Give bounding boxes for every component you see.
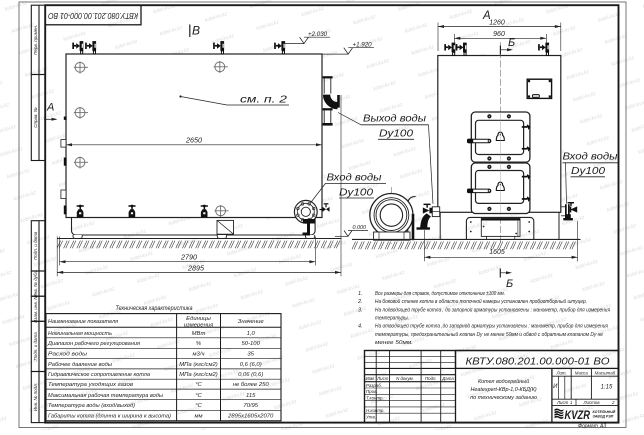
svg-text:ЗАВОД РЭП: ЗАВОД РЭП bbox=[593, 414, 614, 418]
svg-text:Лит.: Лит. bbox=[555, 370, 566, 375]
svg-text:Формат: Формат bbox=[578, 423, 598, 429]
svg-text:КВТУ.080.201.00.000-01 ВО: КВТУ.080.201.00.000-01 ВО bbox=[466, 356, 610, 368]
svg-text:Листов: Листов bbox=[583, 400, 601, 405]
svg-text:35: 35 bbox=[247, 351, 254, 357]
svg-text:На подводящей трубе котла , д: На подводящей трубе котла , до запорной … bbox=[375, 306, 610, 313]
svg-text:70/95: 70/95 bbox=[243, 403, 258, 409]
svg-text:Dy100: Dy100 bbox=[339, 186, 373, 198]
svg-text:Heatexpert-КВр-1,0-КБД(К): Heatexpert-КВр-1,0-КБД(К) bbox=[471, 387, 537, 393]
svg-text:Все размеры для справок, допус: Все размеры для справок, допустимое откл… bbox=[375, 291, 505, 297]
svg-text:Диапазон рабочего регулировани: Диапазон рабочего регулирования bbox=[47, 341, 141, 347]
svg-text:МПа (кгс/см2): МПа (кгс/см2) bbox=[179, 362, 218, 368]
svg-text:Температура уходящих газов: Температура уходящих газов bbox=[48, 382, 133, 388]
svg-text:1.: 1. bbox=[358, 291, 363, 297]
svg-text:Б: Б bbox=[506, 278, 513, 290]
svg-text:Подп. и дата: Подп. и дата bbox=[33, 231, 38, 260]
svg-text:Котел водогрейный: Котел водогрейный bbox=[478, 378, 529, 385]
svg-text:МВт: МВт bbox=[192, 331, 206, 337]
svg-text:На отводящей трубе котла ,до з: На отводящей трубе котла ,до запорной ар… bbox=[375, 323, 608, 330]
svg-text:не более 250: не более 250 bbox=[233, 382, 270, 388]
svg-text:Изм.: Изм. bbox=[366, 376, 375, 381]
svg-text:Взам. инв. №: Взам. инв. № bbox=[33, 295, 38, 323]
svg-text:температуры.: температуры. bbox=[375, 316, 409, 322]
svg-text:1,0: 1,0 bbox=[247, 331, 256, 337]
svg-text:+1.920: +1.920 bbox=[353, 41, 373, 48]
svg-text:Габариты котла (длинна к ширин: Габариты котла (длинна к ширина к высота… bbox=[48, 414, 171, 420]
svg-text:И: И bbox=[553, 384, 558, 390]
svg-text:Dy100: Dy100 bbox=[379, 128, 413, 140]
svg-text:Инв. № дубл.: Инв. № дубл. bbox=[33, 270, 38, 298]
svg-text:см. п. 2: см. п. 2 bbox=[240, 95, 288, 106]
svg-text:Инв. № подл.: Инв. № подл. bbox=[33, 383, 38, 411]
svg-text:1605: 1605 bbox=[489, 249, 505, 256]
svg-text:Перв. примен.: Перв. примен. bbox=[33, 25, 38, 55]
svg-text:+2.030: +2.030 bbox=[308, 31, 328, 38]
svg-text:В: В bbox=[192, 24, 200, 38]
svg-text:KVZR: KVZR bbox=[565, 410, 591, 422]
svg-text:2650: 2650 bbox=[185, 136, 202, 145]
svg-text:Выход воды: Выход воды bbox=[363, 113, 426, 125]
svg-text:м3/ч: м3/ч bbox=[193, 351, 205, 357]
svg-text:Справ. №: Справ. № bbox=[33, 107, 38, 128]
svg-text:Пров.: Пров. bbox=[366, 389, 378, 394]
svg-text:115: 115 bbox=[246, 393, 256, 399]
svg-text:Лист: Лист bbox=[376, 376, 389, 381]
svg-text:Dy100: Dy100 bbox=[571, 165, 605, 177]
svg-text:Гидравлическое сопротивление к: Гидравлическое сопротивление котла bbox=[48, 372, 151, 378]
svg-text:%: % bbox=[196, 341, 201, 347]
svg-text:Температура воды (вход/выход): Температура воды (вход/выход) bbox=[48, 403, 135, 409]
svg-text:Вход воды: Вход воды bbox=[563, 151, 618, 163]
svg-text:Разраб.: Разраб. bbox=[366, 383, 382, 388]
svg-text:50-100: 50-100 bbox=[242, 341, 261, 347]
svg-text:Вход воды: Вход воды bbox=[327, 172, 382, 184]
svg-text:менее 50мм.: менее 50мм. bbox=[375, 340, 413, 346]
svg-text:Значение: Значение bbox=[238, 319, 265, 325]
svg-text:960: 960 bbox=[493, 31, 505, 38]
svg-text:мм: мм bbox=[194, 414, 202, 420]
svg-text:Лист: Лист bbox=[556, 400, 569, 405]
svg-text:Дата: Дата bbox=[441, 376, 454, 381]
svg-text:Номинальная мощность: Номинальная мощность bbox=[48, 331, 112, 337]
svg-text:2895: 2895 bbox=[187, 263, 205, 272]
svg-text:Т.контр.: Т.контр. bbox=[366, 396, 384, 401]
svg-text:1260: 1260 bbox=[489, 19, 505, 26]
svg-text:Техническая характеристика: Техническая характеристика bbox=[116, 305, 193, 312]
svg-text:2.: 2. bbox=[357, 299, 363, 305]
svg-text:по техническому заданию: по техническому заданию bbox=[470, 395, 537, 401]
svg-text:Подп. и дата: Подп. и дата bbox=[33, 332, 38, 361]
svg-text:КВТУ.080.201.00.000-01 ВО: КВТУ.080.201.00.000-01 ВО bbox=[48, 11, 138, 20]
svg-text:1:15: 1:15 bbox=[601, 385, 613, 391]
svg-text:°С: °С bbox=[195, 393, 202, 399]
svg-text:КОТЕЛЬНЫЙ: КОТЕЛЬНЫЙ bbox=[593, 410, 616, 414]
svg-text:2: 2 bbox=[611, 400, 615, 405]
svg-text:°С: °С bbox=[195, 382, 202, 388]
svg-text:0,06 (0,6): 0,06 (0,6) bbox=[238, 372, 263, 378]
svg-text:Утв.: Утв. bbox=[366, 414, 376, 419]
svg-text:°С: °С bbox=[195, 403, 202, 409]
svg-text:2895х1605х2070: 2895х1605х2070 bbox=[227, 414, 274, 420]
svg-text:А3: А3 bbox=[599, 423, 606, 429]
svg-text:Наименование показателя: Наименование показателя bbox=[48, 319, 119, 325]
svg-text:Масштаб: Масштаб bbox=[595, 370, 616, 375]
svg-text:Максимальная рабочая температу: Максимальная рабочая температура воды bbox=[48, 393, 164, 399]
svg-text:4.: 4. bbox=[358, 324, 363, 330]
svg-text:Рабочее давление воды: Рабочее давление воды bbox=[48, 362, 113, 368]
svg-text:Масса: Масса bbox=[575, 370, 589, 375]
svg-text:Единицы: Единицы bbox=[186, 316, 211, 322]
svg-text:Б: Б bbox=[508, 37, 515, 49]
svg-text:2790: 2790 bbox=[180, 253, 197, 262]
svg-text:3.: 3. bbox=[358, 307, 363, 313]
svg-text:На боковой стенке котла в обла: На боковой стенке котла в области топочн… bbox=[375, 298, 587, 305]
svg-text:А: А bbox=[46, 102, 54, 114]
svg-text:измерения: измерения bbox=[184, 322, 214, 328]
svg-text:Н.контр.: Н.контр. bbox=[366, 408, 385, 413]
svg-text:0.000: 0.000 bbox=[353, 225, 367, 231]
svg-text:0,6 (6,0): 0,6 (6,0) bbox=[240, 362, 262, 368]
svg-text:Подп.: Подп. bbox=[425, 376, 437, 381]
svg-text:N докум.: N докум. bbox=[396, 376, 414, 381]
svg-text:МПа (кгс/см2): МПа (кгс/см2) bbox=[179, 372, 218, 378]
svg-text:Расход воды: Расход воды bbox=[48, 351, 88, 357]
svg-text:температуры, предохранительный: температуры, предохранительный клапан Dу… bbox=[375, 331, 603, 338]
